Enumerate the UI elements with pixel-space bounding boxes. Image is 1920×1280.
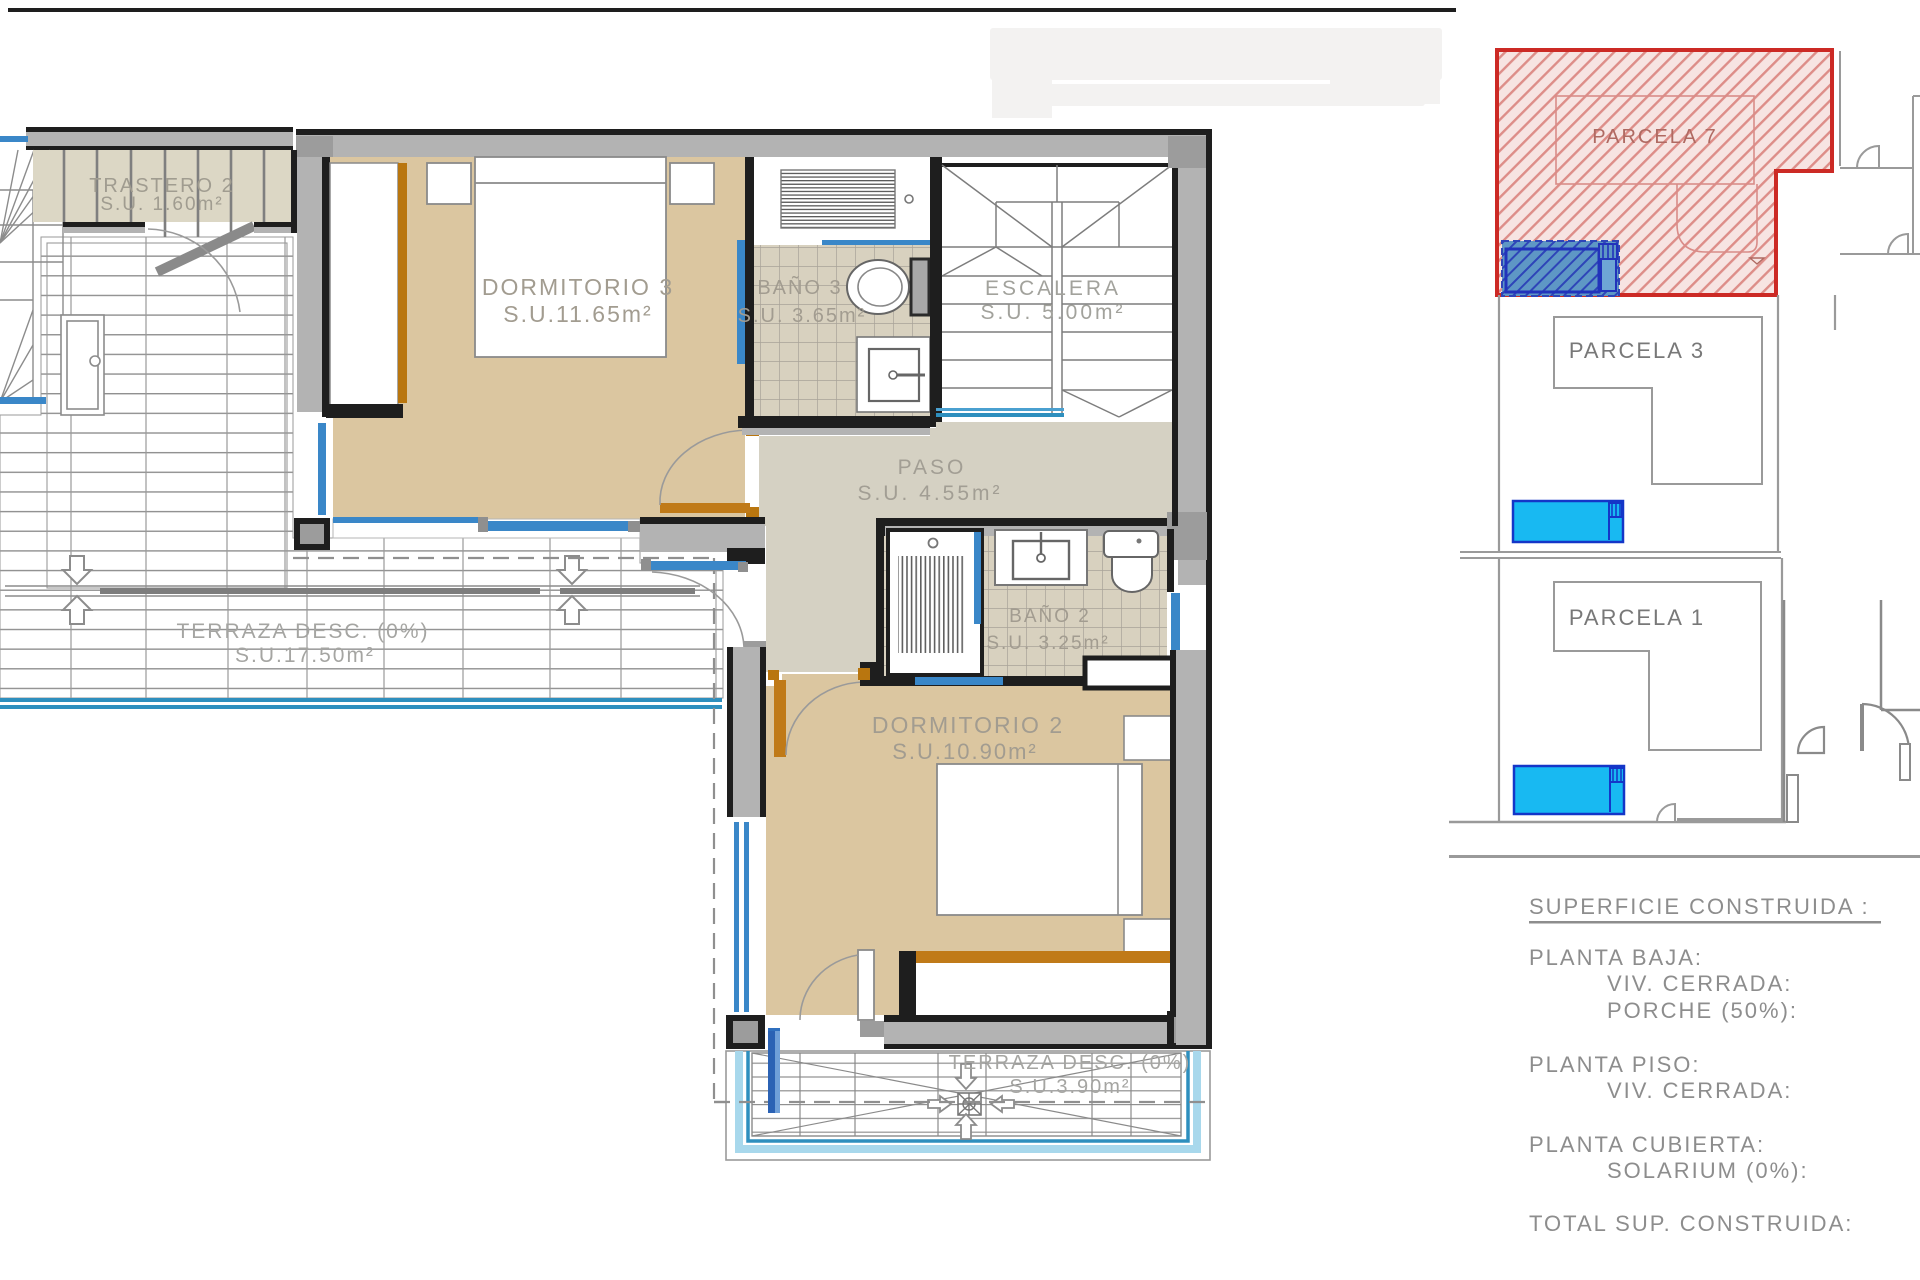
svg-text:S.U.10.90m²: S.U.10.90m² [892,739,1038,764]
svg-text:PARCELA 1: PARCELA 1 [1569,605,1705,630]
svg-text:TERRAZA DESC. (0%): TERRAZA DESC. (0%) [176,620,429,643]
svg-text:PLANTA PISO:: PLANTA PISO: [1529,1052,1701,1077]
svg-text:ESCALERA: ESCALERA [985,277,1121,300]
svg-text:S.U.17.50m²: S.U.17.50m² [235,644,375,667]
svg-text:S.U. 5.00m²: S.U. 5.00m² [980,301,1125,324]
svg-text:VIV. CERRADA:: VIV. CERRADA: [1607,1078,1792,1103]
svg-text:S.U. 1.60m²: S.U. 1.60m² [100,194,223,215]
svg-text:SUPERFICIE CONSTRUIDA :: SUPERFICIE CONSTRUIDA : [1529,894,1870,919]
svg-text:DORMITORIO 3: DORMITORIO 3 [482,274,674,300]
svg-text:S.U. 3.25m²: S.U. 3.25m² [986,633,1109,654]
svg-text:S.U. 4.55m²: S.U. 4.55m² [857,482,1002,505]
svg-text:PARCELA 3: PARCELA 3 [1569,338,1705,363]
svg-text:BAÑO 2: BAÑO 2 [1009,605,1091,627]
svg-text:BAÑO 3: BAÑO 3 [757,275,842,299]
svg-text:TOTAL SUP. CONSTRUIDA:: TOTAL SUP. CONSTRUIDA: [1529,1211,1853,1236]
svg-text:VIV. CERRADA:: VIV. CERRADA: [1607,971,1792,996]
svg-text:SOLARIUM (0%):: SOLARIUM (0%): [1607,1158,1809,1183]
svg-text:TERRAZA DESC. (0%): TERRAZA DESC. (0%) [949,1052,1192,1074]
svg-text:S.U. 3.65m²: S.U. 3.65m² [738,305,867,327]
svg-text:PORCHE (50%):: PORCHE (50%): [1607,998,1798,1023]
svg-text:PASO: PASO [898,456,967,479]
svg-text:S.U.11.65m²: S.U.11.65m² [503,301,652,327]
svg-text:DORMITORIO 2: DORMITORIO 2 [872,712,1064,738]
svg-text:PLANTA BAJA:: PLANTA BAJA: [1529,945,1703,970]
svg-text:PLANTA CUBIERTA:: PLANTA CUBIERTA: [1529,1132,1765,1157]
svg-text:PARCELA 7: PARCELA 7 [1592,126,1717,148]
svg-text:S.U.3.90m²: S.U.3.90m² [1009,1076,1130,1098]
